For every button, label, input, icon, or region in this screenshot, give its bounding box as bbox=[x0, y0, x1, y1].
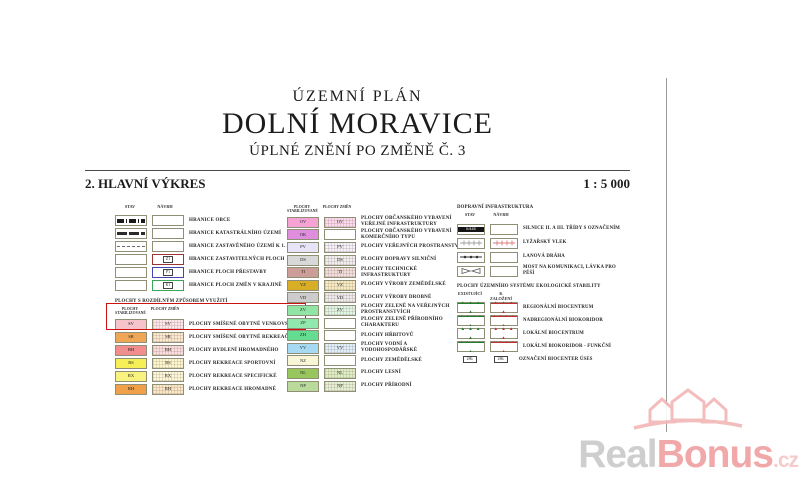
cableway-symbol bbox=[457, 252, 485, 263]
area-code: PV bbox=[337, 245, 343, 250]
area-swatch-change: RH bbox=[152, 384, 184, 395]
biocentre-tag-proposed: 286. bbox=[488, 356, 514, 364]
area-swatch-change: TI bbox=[324, 267, 356, 278]
area-code: VZ bbox=[337, 283, 343, 288]
empty-box bbox=[324, 355, 356, 366]
col-header-stable: PLOCHY STABILIZOVANÉ bbox=[287, 205, 317, 216]
area-code: SR bbox=[128, 335, 134, 340]
area-swatch-change: SR bbox=[152, 332, 184, 343]
legend-row-zv: ZV ZV PLOCHY ZELENĚ NA VEŘEJNÝCH PROSTRA… bbox=[287, 304, 462, 317]
area-swatch-stav: DS bbox=[287, 255, 319, 266]
biocentre-tag: 286. bbox=[463, 356, 478, 364]
column-headers: STAV NÁVRH bbox=[457, 213, 625, 222]
fine-dashed-line-icon bbox=[117, 246, 145, 247]
empty-box bbox=[324, 330, 356, 341]
area-code: NZ bbox=[300, 359, 306, 364]
legend-row: P1 HRANICE PLOCH PŘESTAVBY bbox=[115, 266, 307, 279]
triangle-row-icon bbox=[458, 338, 484, 356]
boundary-symbol-landscape-change: K1 bbox=[152, 280, 184, 291]
area-swatch-stav: OK bbox=[287, 229, 319, 240]
area-swatch-stav: NL bbox=[287, 368, 319, 379]
skilift-symbol-stav bbox=[457, 238, 485, 249]
area-swatch-stav: ZP bbox=[287, 318, 319, 329]
area-swatch-stav: PV bbox=[287, 242, 319, 253]
legend-row: HRANICE ZASTAVĚNÉHO ÚZEMÍ K 1. 11. 2021 bbox=[115, 240, 307, 253]
legend-row: HRANICE OBCE bbox=[115, 214, 307, 227]
legend-label: PLOCHY OBČANSKÉHO VYBAVENÍ KOMERČNÍHO TY… bbox=[361, 229, 462, 241]
area-code: ZH bbox=[300, 333, 306, 338]
legend-row-bh: BH BH PLOCHY BYDLENÍ HROMADNÉHO bbox=[115, 344, 307, 357]
legend-row-ti: TI TI PLOCHY TECHNICKÉ INFRASTRUKTURY bbox=[287, 266, 462, 279]
area-swatch-change: RS bbox=[152, 358, 184, 369]
legend-label: LANOVÁ DRÁHA bbox=[523, 254, 623, 260]
area-swatch-change: VD bbox=[324, 292, 356, 303]
area-swatch-stav: ZV bbox=[287, 305, 319, 316]
area-swatch-stav: NP bbox=[287, 381, 319, 392]
area-swatch-change: DS bbox=[324, 255, 356, 266]
area-code: NL bbox=[300, 371, 306, 376]
empty-box bbox=[490, 224, 518, 235]
legend-label: HRANICE PLOCH PŘESTAVBY bbox=[189, 270, 267, 276]
realbonus-watermark: RealBonus.cz bbox=[578, 388, 798, 474]
legend-label: PLOCHY OBČANSKÉHO VYBAVENÍ VEŘEJNÉ INFRA… bbox=[361, 216, 462, 228]
tick-line-icon bbox=[493, 239, 515, 247]
legend-row-nz: NZ PLOCHY ZEMĚDĚLSKÉ bbox=[287, 355, 462, 368]
legend-column-transport-uses: DOPRAVNÍ INFRASTRUKTURA STAV NÁVRH II/44… bbox=[457, 205, 625, 366]
empty-box bbox=[490, 266, 518, 277]
legend-label: SILNICE II. A III. TŘÍDY S OZNAČENÍM bbox=[523, 226, 623, 232]
legend-label: PLOCHY HŘBITOVŮ bbox=[361, 333, 462, 339]
area-tag: P1 bbox=[163, 269, 173, 276]
section-title: PLOCHY ÚZEMNÍHO SYSTÉMU EKOLOGICKÉ STABI… bbox=[457, 284, 625, 289]
area-code: NL bbox=[337, 371, 343, 376]
legend-row-zp: ZP PLOCHY ZELENĚ PŘÍRODNÍHO CHARAKTERU bbox=[287, 317, 462, 330]
legend-label: PLOCHY VÝROBY ZEMĚDĚLSKÉ bbox=[361, 282, 462, 288]
area-swatch-change: PV bbox=[324, 242, 356, 253]
boundary-symbol-developable: Z1 bbox=[152, 254, 184, 265]
area-code: ZP bbox=[300, 321, 305, 326]
uses-symbol-proposed bbox=[490, 341, 518, 352]
dashdot-line-icon bbox=[117, 219, 145, 223]
triangle-row-icon bbox=[491, 338, 517, 356]
bowtie-icon bbox=[460, 267, 482, 275]
title-block: ÚZEMNÍ PLÁN DOLNÍ MORAVICE ÚPLNÉ ZNĚNÍ P… bbox=[85, 88, 630, 160]
area-swatch-change: VZ bbox=[324, 280, 356, 291]
legend-row-skilift: LYŽAŘSKÝ VLEK bbox=[457, 236, 625, 250]
header-divider bbox=[85, 170, 630, 171]
legend-label: HRANICE PLOCH ZMĚN V KRAJINĚ bbox=[189, 283, 282, 289]
area-swatch-stav: OV bbox=[287, 217, 319, 228]
sheet-title: 2. HLAVNÍ VÝKRES bbox=[85, 176, 206, 192]
legend-label: LOKÁLNÍ BIOCENTRUM bbox=[523, 331, 584, 337]
area-code: BH bbox=[165, 348, 171, 353]
empty-box bbox=[324, 229, 356, 240]
highlight-rectangle bbox=[106, 303, 306, 330]
legend-column-areas: PLOCHY STABILIZOVANÉ PLOCHY ZMĚN OV OV P… bbox=[287, 205, 462, 392]
empty-box bbox=[324, 318, 356, 329]
biocentre-tag: 286. bbox=[494, 356, 509, 364]
area-swatch-stav: ZH bbox=[287, 330, 319, 341]
area-code: ZV bbox=[300, 308, 306, 313]
legend-label: HRANICE KATASTRÁLNÍHO ÚZEMÍ bbox=[189, 231, 281, 237]
legend-column-boundaries: STAV NÁVRH HRANICE OBCE HRANICE KATASTRÁ… bbox=[115, 205, 307, 396]
legend-row-cableway: LANOVÁ DRÁHA bbox=[457, 250, 625, 264]
tick-line-icon bbox=[460, 239, 482, 247]
uses-symbol-existing bbox=[457, 341, 485, 352]
watermark-cz: .cz bbox=[773, 449, 798, 472]
col-header-stav: STAV bbox=[457, 213, 483, 222]
area-swatch-stav: RX bbox=[115, 371, 147, 382]
area-code: NP bbox=[337, 384, 343, 389]
area-swatch-stav: BH bbox=[115, 345, 147, 356]
area-code: RX bbox=[165, 374, 171, 379]
empty-box bbox=[152, 215, 184, 226]
section-title: DOPRAVNÍ INFRASTRUKTURA bbox=[457, 205, 625, 210]
area-swatch-stav: RS bbox=[115, 358, 147, 369]
area-code: VV bbox=[300, 346, 307, 351]
legend-row-nl: NL NL PLOCHY LESNÍ bbox=[287, 367, 462, 380]
area-code: SR bbox=[165, 335, 171, 340]
area-swatch-stav: TI bbox=[287, 267, 319, 278]
area-code: RX bbox=[128, 374, 134, 379]
legend-label: PLOCHY ZEMĚDĚLSKÉ bbox=[361, 358, 462, 364]
legend-label: REGIONÁLNÍ BIOCENTRUM bbox=[523, 305, 593, 311]
area-swatch-stav: SR bbox=[115, 332, 147, 343]
dashed-band-icon bbox=[117, 232, 145, 235]
legend-row-vz: VZ VZ PLOCHY VÝROBY ZEMĚDĚLSKÉ bbox=[287, 279, 462, 292]
column-headers: STAV NÁVRH bbox=[115, 205, 307, 214]
legend-label: PLOCHY ZELENĚ NA VEŘEJNÝCH PROSTRANSTVÍC… bbox=[361, 304, 462, 316]
area-swatch-change: VV bbox=[324, 343, 356, 354]
area-code: VZ bbox=[300, 283, 306, 288]
watermark-real: Real bbox=[578, 433, 656, 476]
legend-label: PLOCHY TECHNICKÉ INFRASTRUKTURY bbox=[361, 267, 462, 279]
skilift-symbol-navrh bbox=[490, 238, 518, 249]
area-swatch-stav: VV bbox=[287, 343, 319, 354]
area-swatch-stav: RH bbox=[115, 384, 147, 395]
col-header-stav: STAV bbox=[115, 205, 145, 214]
legend-label: HRANICE ZASTAVITELNÝCH PLOCH bbox=[189, 257, 284, 263]
area-swatch-change: NP bbox=[324, 381, 356, 392]
road-symbol: II/445 bbox=[457, 224, 485, 235]
legend-row-sr: SR SR PLOCHY SMÍŠENÉ OBYTNÉ REKREAČNÍ bbox=[115, 331, 307, 344]
area-code: ZV bbox=[337, 308, 343, 313]
area-code: DS bbox=[300, 258, 306, 263]
legend-label: PLOCHY VEŘEJNÝCH PROSTRANSTVÍ bbox=[361, 244, 462, 250]
boundary-symbol-cadastre bbox=[115, 228, 147, 239]
area-code: OV bbox=[337, 220, 344, 225]
legend-row-ov: OV OV PLOCHY OBČANSKÉHO VYBAVENÍ VEŘEJNÉ… bbox=[287, 216, 462, 229]
area-code: OV bbox=[300, 220, 307, 225]
legend-row-np: NP NP PLOCHY PŘÍRODNÍ bbox=[287, 380, 462, 393]
legend-row-ok: OK PLOCHY OBČANSKÉHO VYBAVENÍ KOMERČNÍHO… bbox=[287, 229, 462, 242]
map-scale: 1 : 5 000 bbox=[583, 176, 630, 192]
boundary-symbol-redevelopment: P1 bbox=[152, 267, 184, 278]
area-code: TI bbox=[301, 270, 305, 275]
legend-row: Z1 HRANICE ZASTAVITELNÝCH PLOCH bbox=[115, 253, 307, 266]
empty-box bbox=[152, 241, 184, 252]
legend-label: MOST NA KOMUNIKACI, LÁVKA PRO PĚŠÍ bbox=[523, 265, 623, 277]
column-headers: PLOCHY STABILIZOVANÉ PLOCHY ZMĚN bbox=[287, 205, 462, 216]
col-header-navrh: NÁVRH bbox=[150, 205, 180, 214]
legend-label: PLOCHY VODNÍ A VODOHOSPODÁŘSKÉ bbox=[361, 342, 462, 354]
legend-label: PLOCHY DOPRAVY SILNIČNÍ bbox=[361, 257, 462, 263]
area-code: RS bbox=[128, 361, 134, 366]
area-swatch-change: RX bbox=[152, 371, 184, 382]
legend-label: PLOCHY VÝROBY DROBNÉ bbox=[361, 295, 462, 301]
biocentre-tag-existing: 286. bbox=[457, 356, 483, 364]
document-subtitle: ÚPLNÉ ZNĚNÍ PO ZMĚNĚ Č. 3 bbox=[85, 143, 630, 160]
legend-row-rs: RS RS PLOCHY REKREACE SPORTOVNÍ bbox=[115, 357, 307, 370]
area-code: VD bbox=[300, 296, 307, 301]
area-code: RH bbox=[128, 387, 134, 392]
area-code: PV bbox=[300, 245, 306, 250]
legend-label: OZNAČENÍ BIOCENTER ÚSES bbox=[519, 357, 593, 363]
plan-legend-page: ÚZEMNÍ PLÁN DOLNÍ MORAVICE ÚPLNÉ ZNĚNÍ P… bbox=[0, 0, 800, 480]
legend-row-local-biocorridor: LOKÁLNÍ BIOKORIDOR - FUNKČNÍ bbox=[457, 340, 625, 353]
boundary-symbol-municipality bbox=[115, 215, 147, 226]
bridge-symbol bbox=[457, 266, 485, 277]
legend-label: PLOCHY ZELENĚ PŘÍRODNÍHO CHARAKTERU bbox=[361, 317, 462, 329]
legend-row-bridge: MOST NA KOMUNIKACI, LÁVKA PRO PĚŠÍ bbox=[457, 264, 625, 278]
legend-row-vd: VD VD PLOCHY VÝROBY DROBNÉ bbox=[287, 292, 462, 305]
empty-box bbox=[115, 254, 147, 265]
empty-box bbox=[490, 252, 518, 263]
area-swatch-stav: VZ bbox=[287, 280, 319, 291]
legend-label: LYŽAŘSKÝ VLEK bbox=[523, 240, 623, 246]
area-swatch-stav: VD bbox=[287, 292, 319, 303]
legend-row-rh: RH RH PLOCHY REKREACE HROMADNÉ bbox=[115, 383, 307, 396]
area-swatch-change: NL bbox=[324, 368, 356, 379]
empty-box bbox=[152, 228, 184, 239]
area-swatch-change: BH bbox=[152, 345, 184, 356]
area-code: RS bbox=[165, 361, 171, 366]
legend-label: HRANICE OBCE bbox=[189, 218, 230, 224]
legend-row-ds: DS DS PLOCHY DOPRAVY SILNIČNÍ bbox=[287, 254, 462, 267]
area-code: VV bbox=[337, 346, 344, 351]
watermark-text: RealBonus.cz bbox=[578, 435, 798, 474]
area-code: OK bbox=[300, 233, 307, 238]
legend-label: PLOCHY PŘÍRODNÍ bbox=[361, 383, 462, 389]
legend-row-pv: PV PV PLOCHY VEŘEJNÝCH PROSTRANSTVÍ bbox=[287, 241, 462, 254]
page-title: DOLNÍ MORAVICE bbox=[85, 107, 630, 141]
road-number-badge: II/445 bbox=[458, 227, 484, 232]
sheet-header: 2. HLAVNÍ VÝKRES 1 : 5 000 bbox=[85, 176, 630, 192]
col-header-change: PLOCHY ZMĚN bbox=[322, 205, 352, 216]
area-code: RH bbox=[165, 387, 171, 392]
area-swatch-change: ZV bbox=[324, 305, 356, 316]
legend-label: NADREGIONÁLNÍ BIOKORIDOR bbox=[523, 318, 603, 324]
legend-row: HRANICE KATASTRÁLNÍHO ÚZEMÍ bbox=[115, 227, 307, 240]
area-code: NP bbox=[300, 384, 306, 389]
legend-label: LOKÁLNÍ BIOKORIDOR - FUNKČNÍ bbox=[523, 344, 611, 350]
boundary-symbol-builtup bbox=[115, 241, 147, 252]
area-code: TI bbox=[338, 270, 342, 275]
area-swatch-change: OV bbox=[324, 217, 356, 228]
col-header-navrh: NÁVRH bbox=[488, 213, 514, 222]
document-type: ÚZEMNÍ PLÁN bbox=[85, 88, 630, 106]
area-tag: K1 bbox=[163, 282, 174, 289]
area-code: DS bbox=[337, 258, 343, 263]
watermark-bonus: Bonus bbox=[657, 433, 773, 476]
area-code: BH bbox=[128, 348, 134, 353]
area-tag: Z1 bbox=[163, 256, 173, 263]
legend-row-rx: RX RX PLOCHY REKREACE SPECIFICKÉ bbox=[115, 370, 307, 383]
empty-box bbox=[115, 280, 147, 291]
dotted-line-icon bbox=[460, 253, 482, 261]
map-frame-line bbox=[666, 78, 667, 432]
area-code: VD bbox=[337, 296, 344, 301]
area-swatch-stav: NZ bbox=[287, 355, 319, 366]
realbonus-logo-icon bbox=[628, 388, 748, 430]
empty-box bbox=[115, 267, 147, 278]
legend-row-zh: ZH PLOCHY HŘBITOVŮ bbox=[287, 329, 462, 342]
legend-row-road: II/445 SILNICE II. A III. TŘÍDY S OZNAČE… bbox=[457, 222, 625, 236]
legend-row: K1 HRANICE PLOCH ZMĚN V KRAJINĚ bbox=[115, 279, 307, 292]
legend-label: PLOCHY LESNÍ bbox=[361, 370, 462, 376]
legend-row-vv: VV VV PLOCHY VODNÍ A VODOHOSPODÁŘSKÉ bbox=[287, 342, 462, 355]
